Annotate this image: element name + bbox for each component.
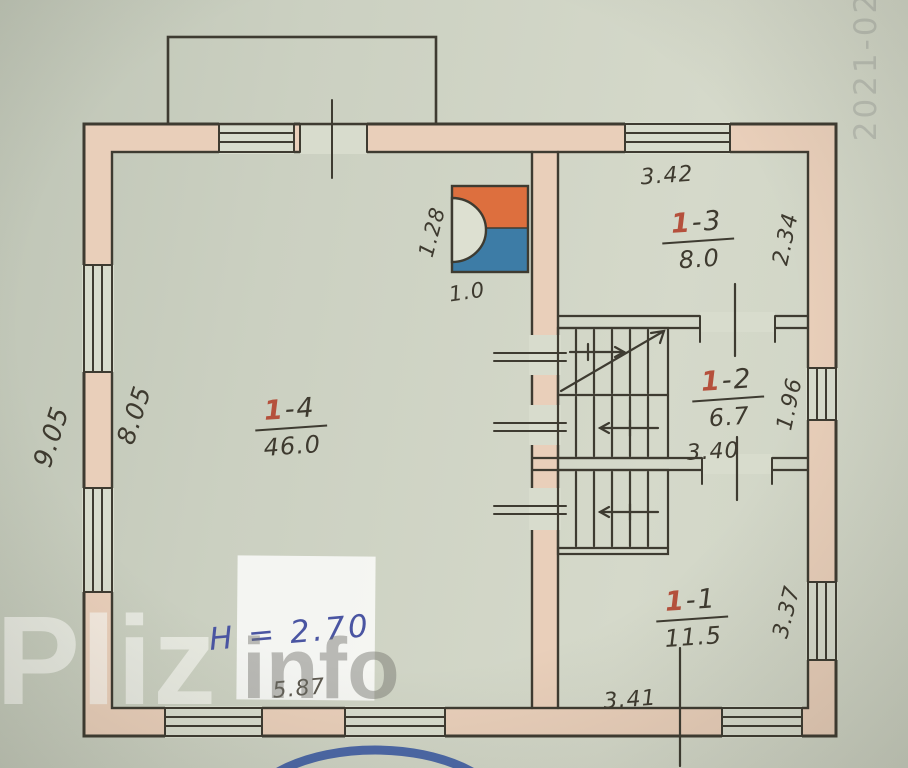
date-stamp: 2021-02: [848, 0, 884, 166]
room-area: 46.0: [255, 426, 329, 462]
stamp-arc-icon: [245, 750, 505, 768]
room-label-1-3: 1-3 8.0: [660, 205, 736, 276]
dimension-ticks: [680, 284, 737, 766]
room-label-1-1: 1-1 11.5: [654, 583, 730, 654]
room-label-1-2: 1-2 6.7: [690, 363, 766, 434]
staircase-icon: [558, 328, 668, 554]
dimension-label-room3-width: 3.42: [640, 162, 695, 191]
dimension-label-room2-width: 3.40: [686, 438, 740, 466]
room-number: 1-1: [654, 583, 728, 623]
room-area: 11.5: [656, 617, 730, 653]
room-number: 1-2: [690, 363, 764, 403]
room-number: 1-4: [253, 392, 327, 432]
scanned-floorplan-photo: 9.05 8.05 1.28 1.0 3.42 2.34 1.96 3.40 3…: [0, 0, 908, 768]
room-area: 8.0: [662, 239, 736, 275]
room-label-1-4: 1-4 46.0: [253, 392, 329, 463]
room-number: 1-3: [660, 205, 734, 245]
porch-outline: [168, 37, 436, 124]
watermark-pliz: Pliz: [0, 598, 217, 724]
dimension-label-room1-width: 3.41: [603, 686, 658, 715]
watermark-info: info: [242, 626, 400, 712]
dimension-label-stove-front: 1.0: [447, 278, 486, 307]
stove-icon: [452, 186, 528, 272]
room-area: 6.7: [692, 397, 766, 433]
